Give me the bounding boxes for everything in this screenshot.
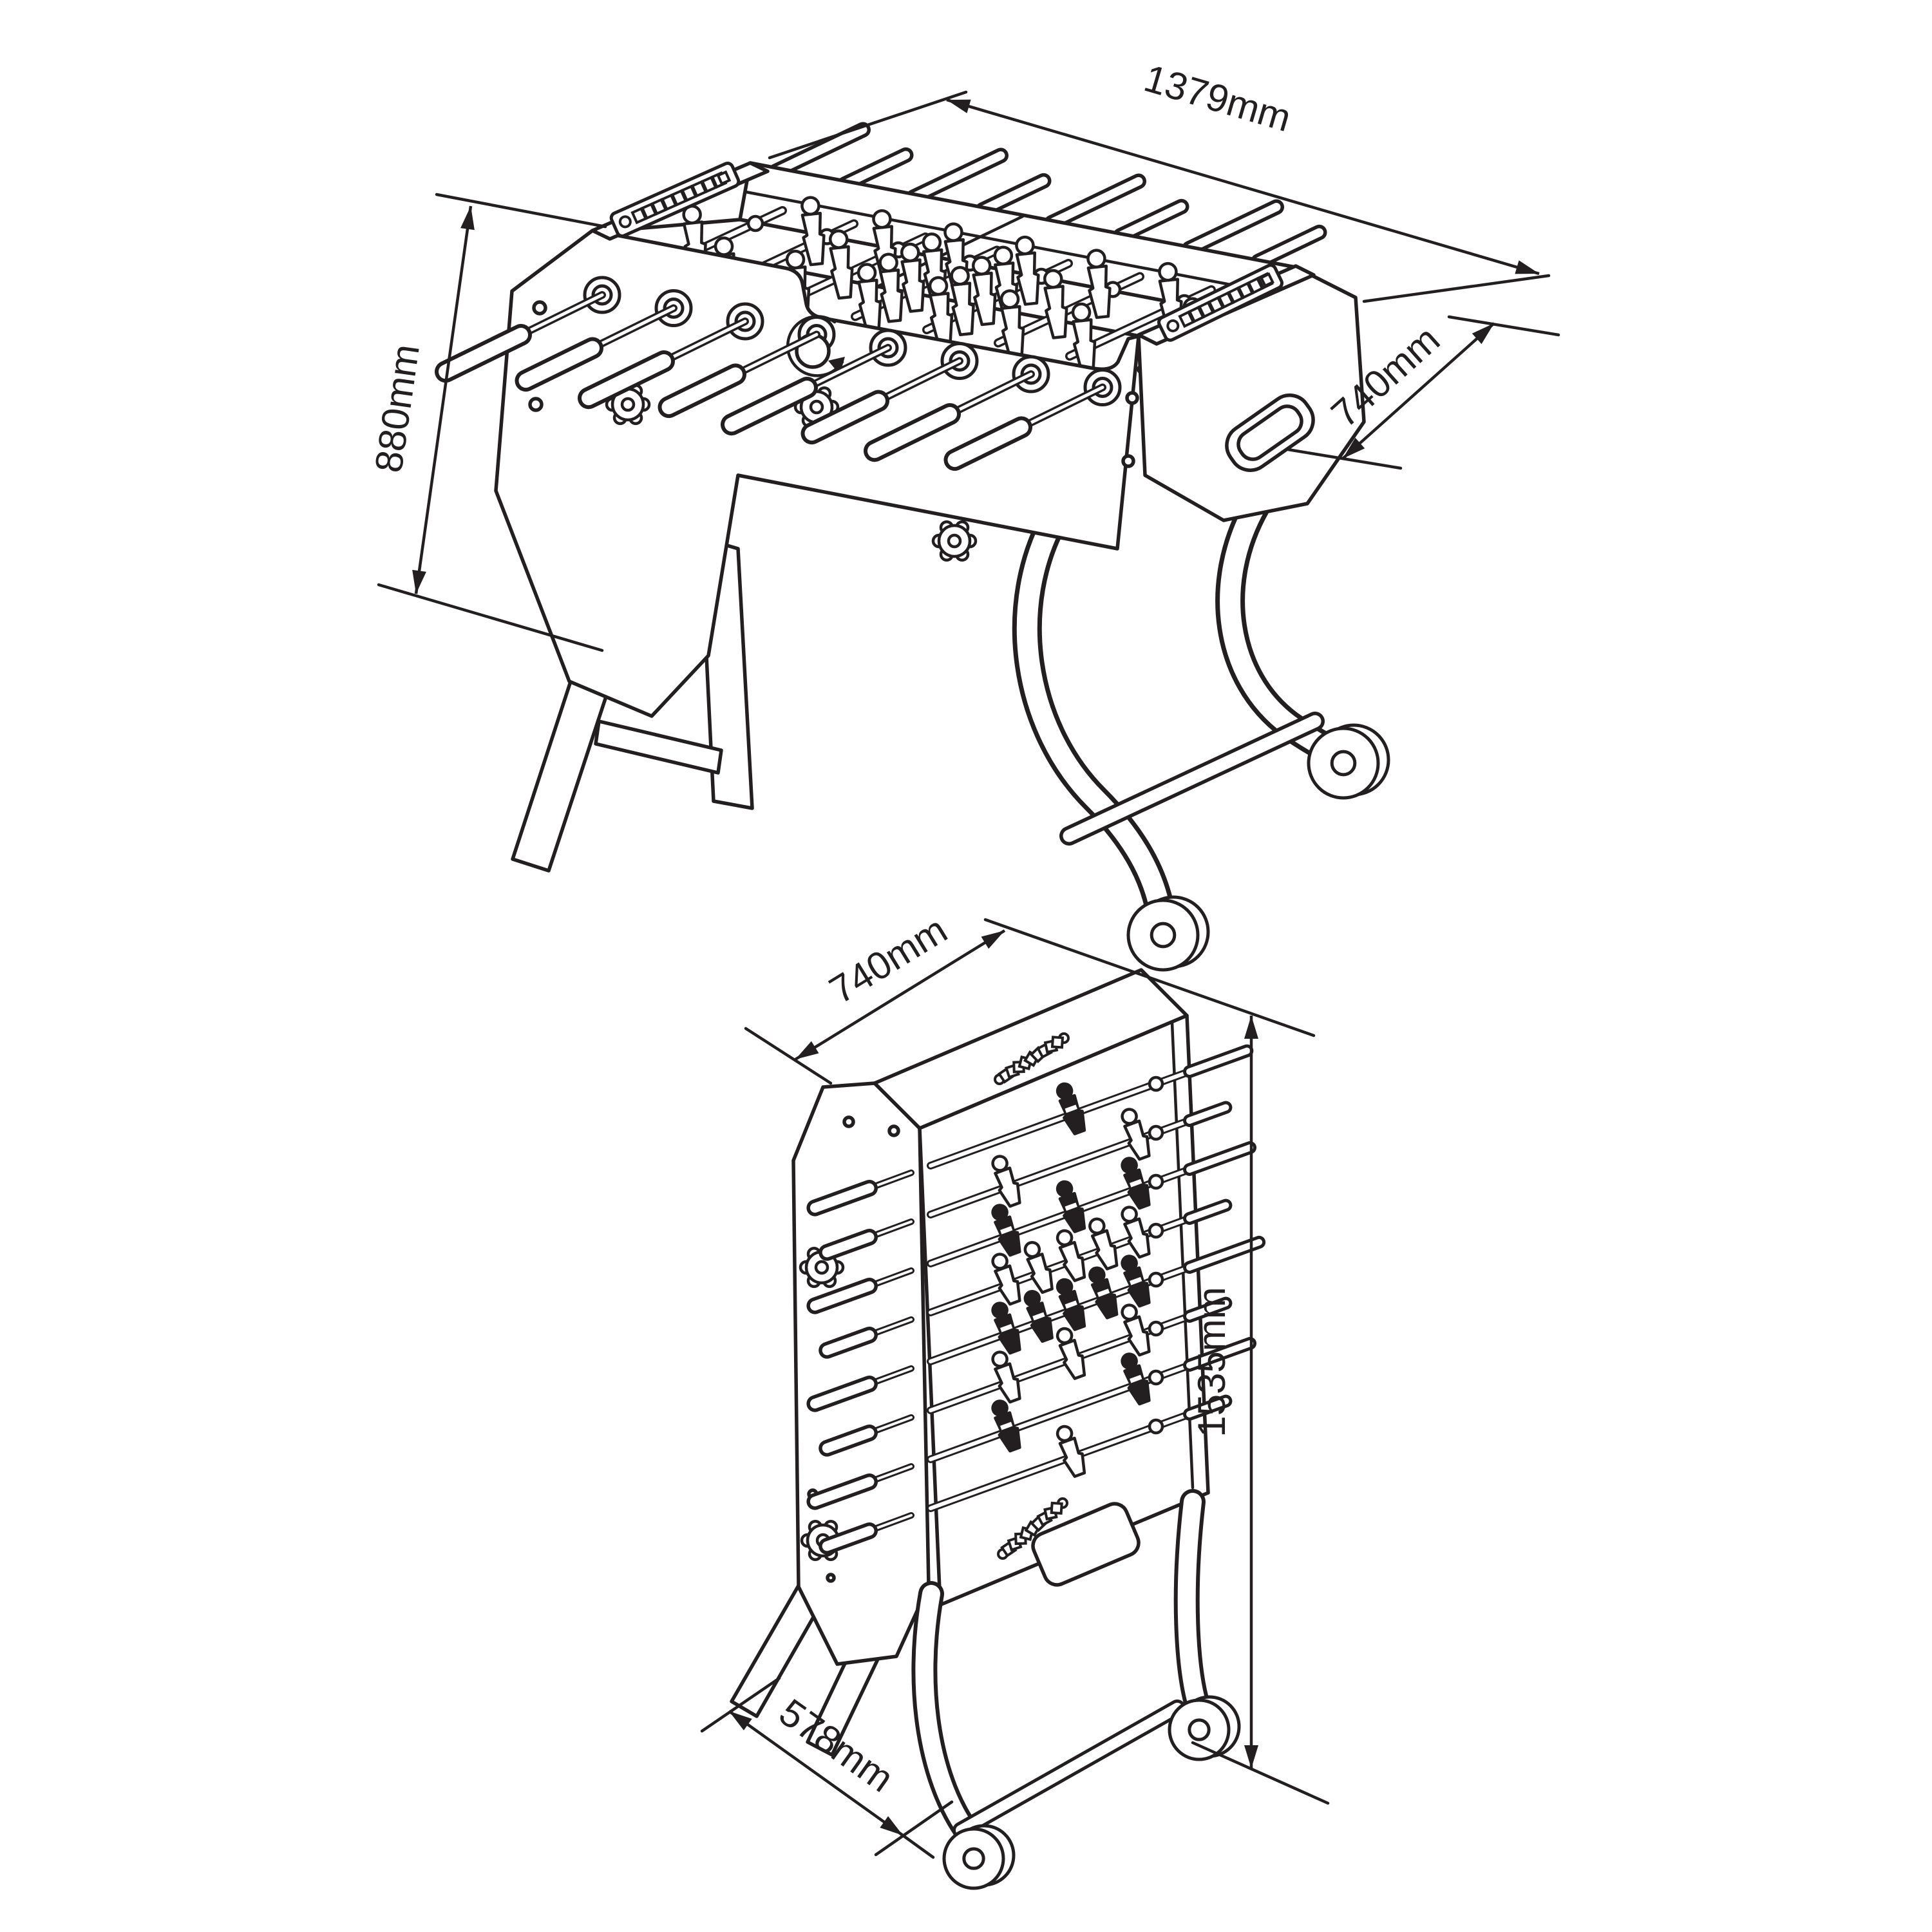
rod-bumper bbox=[1150, 1077, 1162, 1090]
ground-line bbox=[1193, 1743, 1328, 1803]
dimension-arrowhead bbox=[1244, 1745, 1258, 1768]
extension-line bbox=[746, 1028, 831, 1083]
dimension-line bbox=[416, 206, 471, 594]
dimension-arrowhead bbox=[729, 1711, 752, 1730]
dimension-arrowhead bbox=[412, 570, 426, 594]
leg-strut bbox=[596, 721, 721, 773]
rod-bumper bbox=[1150, 1175, 1162, 1188]
bolt-hole bbox=[828, 1575, 834, 1581]
rod-bumper bbox=[1150, 1371, 1162, 1384]
folded-side-wall bbox=[793, 1083, 929, 1664]
extension-line bbox=[1364, 276, 1549, 301]
rod-bumper bbox=[1150, 1420, 1162, 1433]
bolt-hole bbox=[530, 399, 542, 410]
bolt-hole bbox=[534, 302, 545, 314]
bolt-hole bbox=[889, 1126, 898, 1135]
dimension-arrowhead bbox=[947, 100, 971, 113]
dim-label-folded-width: 740mm bbox=[822, 908, 954, 1012]
chain-link bbox=[1052, 1503, 1062, 1513]
technical-drawing: 1379mm 880mm 740mm 740mm 1535mm 578mm bbox=[0, 0, 1932, 1932]
rod-bumper bbox=[1150, 1273, 1162, 1286]
rod-bumper bbox=[1150, 1224, 1162, 1237]
extension-line bbox=[1449, 317, 1558, 335]
dimension-arrowhead bbox=[1244, 1016, 1258, 1039]
rear-legs bbox=[1027, 506, 1388, 970]
extension-line bbox=[903, 1835, 933, 1857]
extension-line bbox=[437, 194, 605, 227]
dimension-arrowhead bbox=[460, 206, 475, 230]
dim-label-assembled-length: 1379mm bbox=[1139, 56, 1296, 140]
screw bbox=[1127, 393, 1137, 403]
dim-label-assembled-height: 880mm bbox=[366, 341, 428, 475]
rod-bumper bbox=[748, 216, 762, 231]
dim-label-folded-height: 1535mm bbox=[1190, 1287, 1233, 1437]
rod-bumper bbox=[1150, 1322, 1162, 1335]
dimension-arrowhead bbox=[880, 1816, 903, 1835]
bolt-hole bbox=[844, 1117, 853, 1126]
rod-bumper bbox=[1150, 1126, 1162, 1139]
extension-line bbox=[770, 92, 966, 158]
view-assembled-table bbox=[446, 130, 1388, 971]
dimension-arrowhead bbox=[795, 1041, 819, 1059]
dimension-arrowhead bbox=[981, 931, 1005, 949]
screw bbox=[1123, 456, 1133, 466]
foosball-dimension-diagram: 1379mm 880mm 740mm 740mm 1535mm 578mm bbox=[0, 0, 1932, 1932]
dimension-arrowhead bbox=[1515, 260, 1539, 274]
chain-link bbox=[1052, 1037, 1063, 1047]
